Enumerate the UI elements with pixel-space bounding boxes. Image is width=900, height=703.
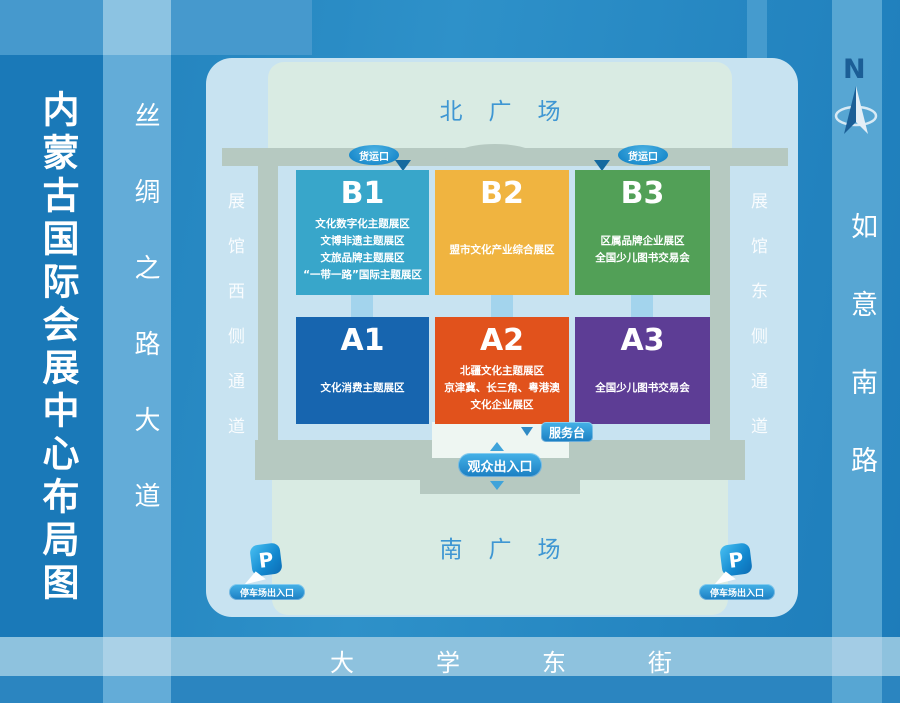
road-crossing-southeast: [832, 637, 882, 676]
page-title: 内蒙古国际会展中心布局图: [30, 90, 84, 606]
visitor-entrance-badge: 观众出入口: [458, 453, 542, 477]
hall-a1-title: A1: [296, 323, 429, 358]
visitor-entrance-up-arrow-icon: [490, 442, 504, 451]
parking-entrance-west: P 停车场出入口: [229, 544, 305, 600]
north-plaza-label: 北广场: [268, 92, 732, 126]
hall-a3-description: 全国少儿图书交易会: [575, 358, 710, 424]
hall-a2-line: 京津冀、长三角、粤港澳: [444, 380, 560, 397]
hall-a3: A3 全国少儿图书交易会: [575, 317, 710, 424]
compass-north-label: N: [843, 54, 866, 85]
passage-label-west: 展馆西侧通道: [222, 192, 247, 462]
hall-b3-title: B3: [575, 176, 710, 211]
map-area: 北广场 南广场 展馆西侧通道 展馆东侧通道 货运口 货运口 B1 文化数字化主题…: [206, 58, 798, 617]
hall-connector: [631, 295, 653, 319]
hall-b2-line: 盟市文化产业综合展区: [450, 242, 555, 259]
south-plaza-label: 南广场: [272, 530, 728, 564]
hall-b2-description: 盟市文化产业综合展区: [435, 211, 569, 295]
road-label-ruyi-south: 如意南路: [842, 212, 881, 524]
parking-entrance-label: 停车场出入口: [699, 584, 775, 600]
road-crossing-southwest: [103, 637, 171, 676]
hall-b3-description: 区属品牌企业展区 全国少儿图书交易会: [575, 211, 710, 295]
hall-b2-title: B2: [435, 176, 569, 211]
hall-b1-description: 文化数字化主题展区 文博非遗主题展区 文旅品牌主题展区 “一带一路”国际主题展区: [296, 211, 429, 295]
hall-a2-line: 北疆文化主题展区: [460, 363, 544, 380]
hall-b3: B3 区属品牌企业展区 全国少儿图书交易会: [575, 170, 710, 295]
hall-b1-title: B1: [296, 176, 429, 211]
hall-a1-description: 文化消费主题展区: [296, 358, 429, 424]
freight-entrance-badge-left: 货运口: [349, 145, 399, 165]
hall-a2: A2 北疆文化主题展区 京津冀、长三角、粤港澳 文化企业展区: [435, 317, 569, 424]
parking-entrance-label: 停车场出入口: [229, 584, 305, 600]
compass-icon: [834, 84, 878, 150]
hall-a2-line: 文化企业展区: [471, 397, 534, 414]
service-desk-arrow-icon: [521, 427, 533, 436]
visitor-entrance-down-arrow-icon: [490, 481, 504, 490]
hall-b1-line: 文博非遗主题展区: [321, 233, 405, 250]
hall-b3-line: 区属品牌企业展区: [601, 233, 685, 250]
north-plaza: 北广场: [268, 62, 732, 148]
parking-flag-icon: [712, 569, 736, 584]
north-road-stripe: [747, 0, 767, 58]
building-east-wall: [710, 149, 730, 449]
hall-b1-line: “一带一路”国际主题展区: [303, 267, 422, 284]
south-plaza: 南广场: [272, 480, 728, 615]
hall-b3-line: 全国少儿图书交易会: [595, 250, 690, 267]
hall-b1-line: 文旅品牌主题展区: [321, 250, 405, 267]
road-label-silk-road: 丝绸之路大道: [127, 102, 164, 558]
layout-map: 内蒙古国际会展中心布局图 丝绸之路大道 如意南路 大学东街 N 北广场 南广场 …: [0, 0, 900, 703]
parking-flag-icon: [242, 569, 266, 584]
hall-a3-title: A3: [575, 323, 710, 358]
passage-label-east: 展馆东侧通道: [745, 192, 770, 462]
hall-b1-line: 文化数字化主题展区: [315, 216, 410, 233]
hall-connector: [351, 295, 373, 319]
hall-a3-line: 全国少儿图书交易会: [595, 380, 690, 397]
hall-b1: B1 文化数字化主题展区 文博非遗主题展区 文旅品牌主题展区 “一带一路”国际主…: [296, 170, 429, 295]
hall-b2: B2 盟市文化产业综合展区: [435, 170, 569, 295]
parking-entrance-east: P 停车场出入口: [699, 544, 775, 600]
road-label-university-east: 大学东街: [330, 643, 754, 678]
hall-connector: [491, 295, 513, 319]
hall-a1: A1 文化消费主题展区: [296, 317, 429, 424]
service-desk-badge: 服务台: [541, 422, 593, 442]
hall-a1-line: 文化消费主题展区: [321, 380, 405, 397]
road-crossing-northwest: [103, 0, 171, 55]
hall-a2-title: A2: [435, 323, 569, 358]
building-west-wall: [258, 149, 278, 449]
freight-entrance-badge-right: 货运口: [618, 145, 668, 165]
hall-a2-description: 北疆文化主题展区 京津冀、长三角、粤港澳 文化企业展区: [435, 358, 569, 424]
